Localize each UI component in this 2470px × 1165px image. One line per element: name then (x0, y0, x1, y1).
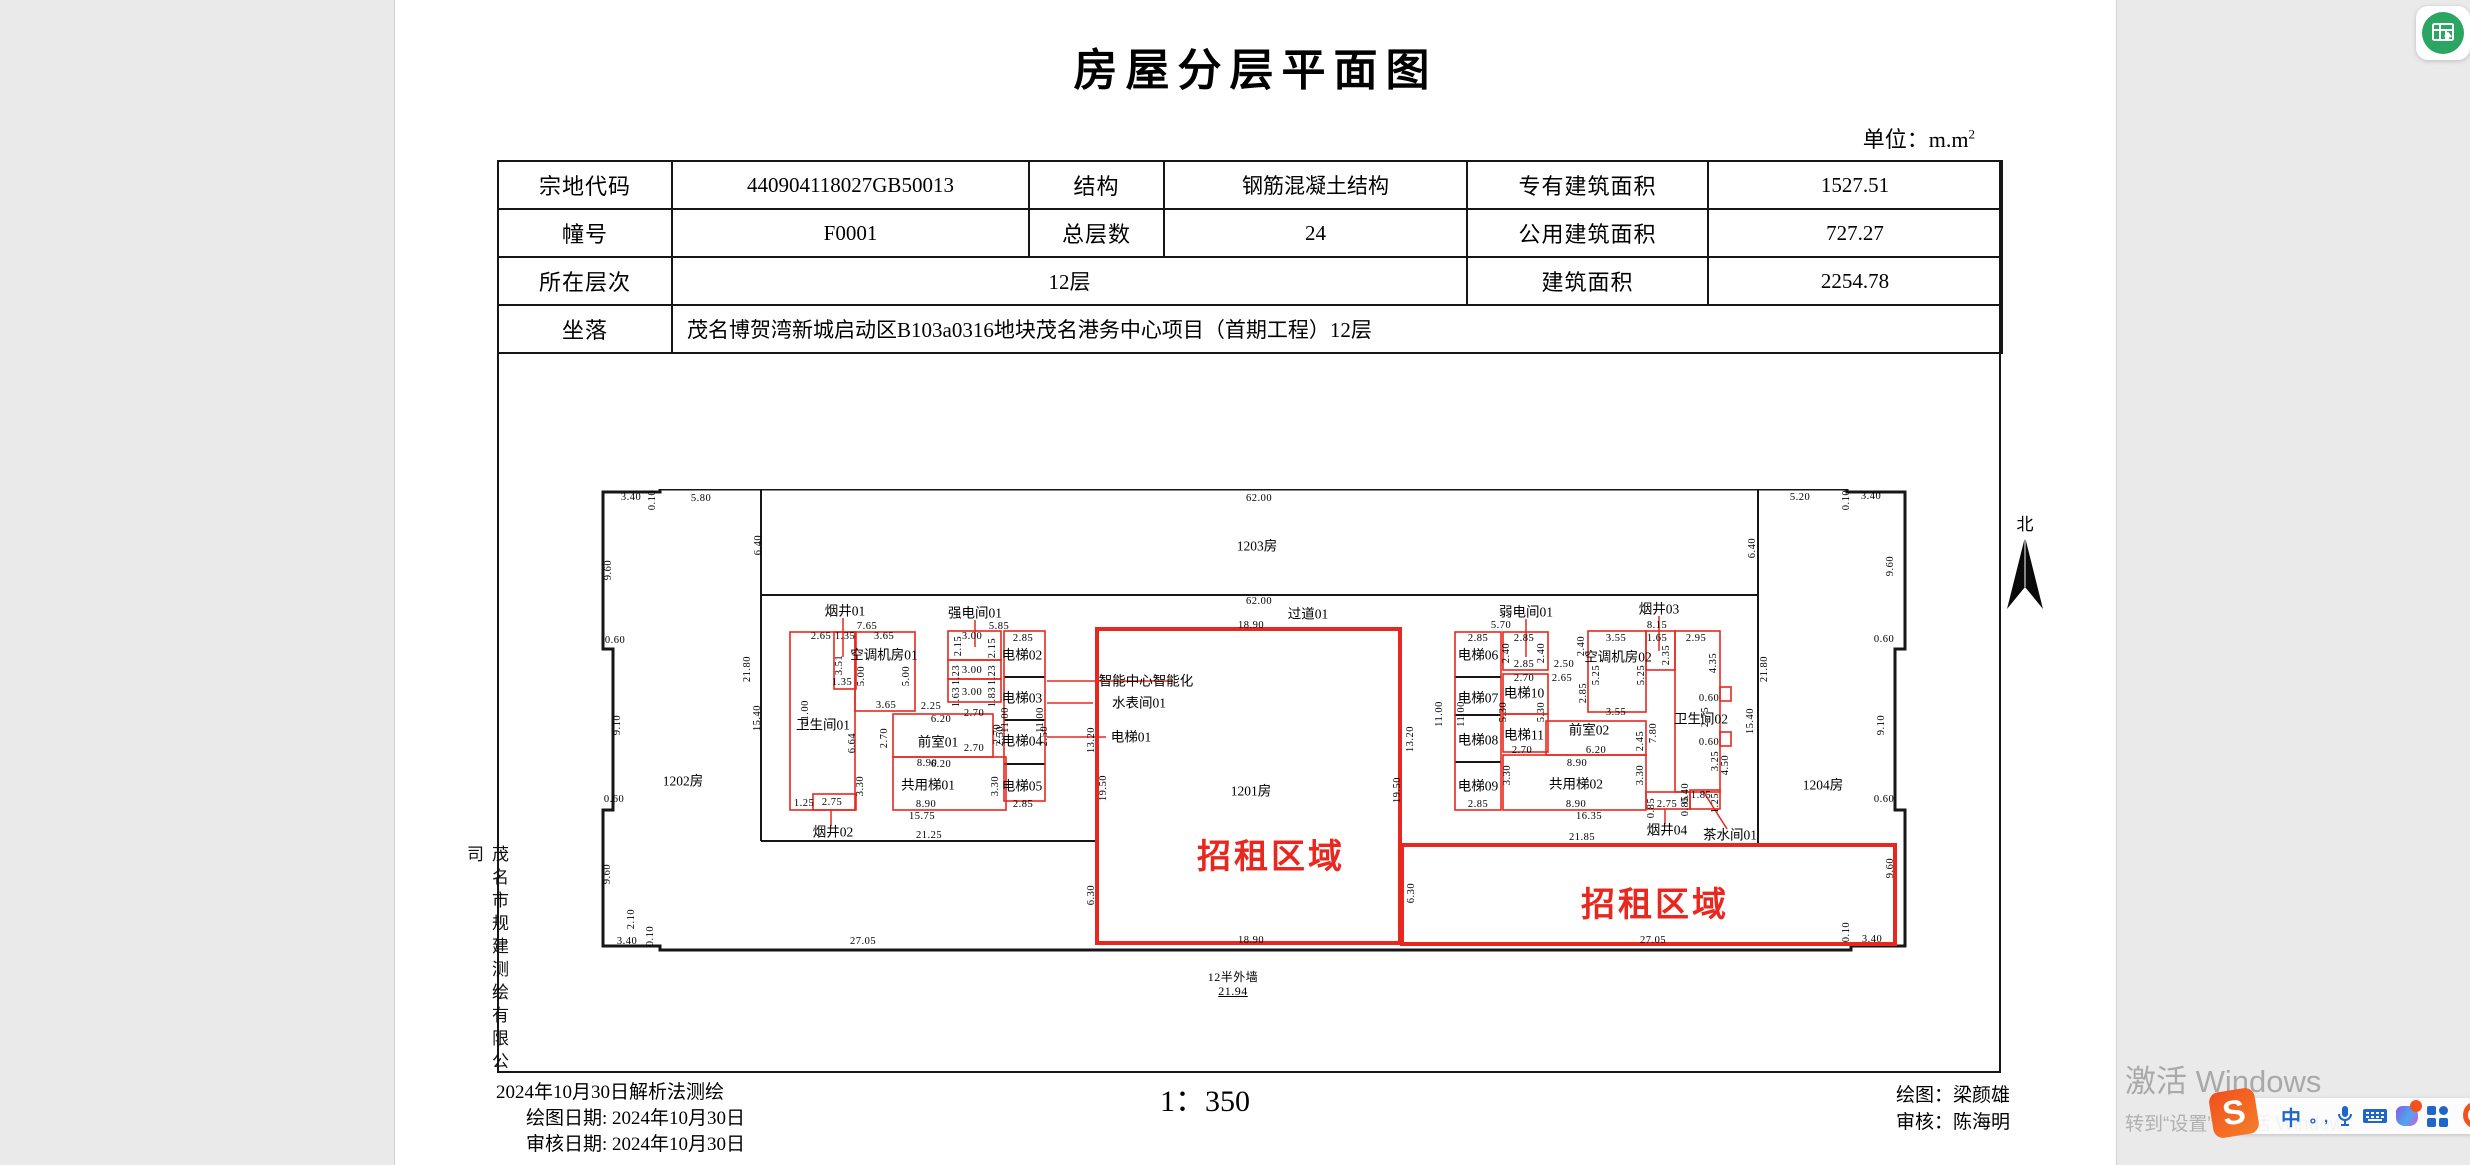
dimension-label: 2.85 (1514, 634, 1534, 645)
dimension-label: 3.65 (874, 632, 894, 643)
room-label: 电梯08 (1458, 733, 1499, 747)
info-cell: 公用建筑面积 (1467, 209, 1708, 257)
map-scale: 1：350 (1095, 1076, 1315, 1120)
unit-label: 单位：m.m2 (1575, 122, 1975, 154)
dimension-label: 1.23 (988, 665, 999, 685)
dimension-label: 0.60 (1699, 738, 1719, 749)
room-label: 茶水间01 (1703, 828, 1757, 842)
dimension-label: 0.10 (1842, 490, 1853, 510)
dimension-label: 5.80 (691, 494, 711, 505)
dimension-label: 9.60 (603, 864, 614, 884)
north-indicator: 北 (1995, 510, 2055, 630)
dimension-label: 3.40 (621, 493, 641, 504)
info-cell: 坐落 (498, 305, 672, 353)
dimension-label: 0.85 (1647, 798, 1658, 818)
dimension-label: 8.90 (1566, 800, 1586, 811)
dimension-label: 9.60 (1886, 858, 1897, 878)
dimension-label: 2.85 (1468, 800, 1488, 811)
dimension-label: 13.20 (1406, 726, 1417, 752)
dimension-label: 2.35 (1662, 645, 1673, 665)
dimension-label: 6.20 (931, 715, 951, 726)
dimension-label: 4.35 (1709, 653, 1720, 673)
dimension-label: 5.20 (1790, 493, 1810, 504)
survey-dates: 2024年10月30日解析法测绘 绘图日期: 2024年10月30日 审核日期:… (496, 1080, 745, 1158)
dimension-label: 19.50 (1099, 775, 1110, 801)
dimension-label: 3.65 (876, 701, 896, 712)
info-cell: 建筑面积 (1467, 257, 1708, 305)
credits: 绘图：梁颜雄 审核：陈海明 (1896, 1082, 2010, 1136)
room-label: 智能中心智能化 (1099, 674, 1194, 688)
room-label: 电梯01 (1111, 730, 1152, 744)
room-label: 前室02 (1569, 723, 1610, 737)
dimension-label: 0.60 (1874, 795, 1894, 806)
chinese-mode-icon[interactable]: 中 (2281, 1103, 2301, 1129)
dimension-label: 8.90 (916, 800, 936, 811)
dimension-label: 3.30 (1503, 765, 1514, 785)
sogou-logo-icon[interactable]: S (2208, 1087, 2261, 1140)
dimension-label: 15.40 (1746, 708, 1757, 734)
dimension-label: 1.65 (1647, 634, 1667, 645)
partial-app-icon[interactable] (2463, 1101, 2470, 1129)
dimension-label: 15.40 (753, 705, 764, 731)
room-label: 电梯04 (1002, 734, 1043, 748)
room-label: 烟井04 (1647, 823, 1688, 837)
dimension-label: 21.85 (1569, 833, 1595, 844)
floor-plan: 1202房1203房1204房1201房过道01烟井01强电间01空调机房01卫… (601, 489, 1911, 1049)
dimension-label: 8.15 (1647, 621, 1667, 632)
dimension-label: 2.25 (921, 702, 941, 713)
room-label: 弱电间01 (1499, 605, 1553, 619)
dimension-label: 5.30 (1499, 702, 1510, 722)
dimension-label: 2.15 (988, 638, 999, 658)
dimension-label: 0.10 (646, 926, 657, 946)
dimension-label: 16.35 (1576, 812, 1602, 823)
dimension-label: 12半外墙 (1208, 971, 1259, 983)
dimension-label: 2.45 (1636, 731, 1647, 751)
draw-date-line: 绘图日期: 2024年10月30日 (526, 1106, 745, 1132)
room-label: 电梯11 (1504, 728, 1544, 742)
room-label: 共用梯02 (1549, 777, 1603, 791)
dimension-label: 2.75 (1701, 707, 1712, 727)
survey-date-line: 2024年10月30日解析法测绘 (496, 1080, 745, 1106)
dimension-label: 1.35 (835, 632, 855, 643)
info-cell: 24 (1164, 209, 1467, 257)
dimension-label: 1.25 (1711, 793, 1722, 813)
room-label: 前室01 (918, 735, 959, 749)
dimension-label: 2.75 (822, 798, 842, 809)
dimension-label: 18.90 (1238, 936, 1264, 947)
dimension-label: 27.05 (850, 937, 876, 948)
dimension-label: 2.40 (1502, 643, 1513, 663)
dimension-label: 62.00 (1246, 597, 1272, 608)
dimension-label: 6.30 (1407, 883, 1418, 903)
north-arrow-icon (1997, 535, 2053, 613)
dimension-label: 0.10 (648, 490, 659, 510)
info-cell: F0001 (672, 209, 1029, 257)
dimension-label: 27.05 (1640, 936, 1666, 947)
dimension-label: 2.50 (1554, 660, 1574, 671)
dimension-label: 2.70 (1512, 746, 1532, 757)
dimension-label: 11.00 (1457, 701, 1468, 727)
dimension-label: 5.25 (1637, 665, 1648, 685)
reviewer-name: 审核：陈海明 (1896, 1109, 2010, 1136)
dimension-label: 2.65 (1552, 674, 1572, 685)
dimension-label: 18.90 (1238, 621, 1264, 632)
room-label: 水表间01 (1112, 696, 1166, 710)
dimension-label: 5.25 (1592, 665, 1603, 685)
microphone-icon[interactable] (2336, 1103, 2354, 1129)
dimension-label: 0.60 (1874, 635, 1894, 646)
dimension-label: 8.90 (1567, 759, 1587, 770)
info-cell: 专有建筑面积 (1467, 161, 1708, 209)
dimension-label: 0.60 (605, 636, 625, 647)
dimension-label: 6.40 (754, 535, 765, 555)
dimension-label: 0.60 (604, 795, 624, 806)
dimension-label: 5.70 (1491, 621, 1511, 632)
room-label: 电梯09 (1458, 779, 1499, 793)
info-cell: 440904118027GB50013 (672, 161, 1029, 209)
dimension-label: 21.80 (743, 656, 754, 682)
dimension-label: 13.20 (1087, 727, 1098, 753)
desktop: 房屋分层平面图 单位：m.m2 宗地代码440904118027GB50013结… (0, 0, 2470, 1165)
room-label: 电梯10 (1504, 686, 1545, 700)
skin-icon[interactable] (2396, 1106, 2418, 1126)
north-label: 北 (1995, 510, 2055, 535)
dimension-label: 5.00 (857, 666, 868, 686)
info-cell: 727.27 (1708, 209, 2002, 257)
info-cell: 幢号 (498, 209, 672, 257)
dimension-label: 2.15 (954, 636, 965, 656)
dimension-label: 2.85 (1468, 634, 1488, 645)
drawing-frame: 宗地代码440904118027GB50013结构钢筋混凝土结构专有建筑面积15… (497, 160, 2001, 1073)
dimension-label: 2.50 (1040, 726, 1051, 746)
dimension-label: 3.30 (1636, 765, 1647, 785)
dimension-label: 6.20 (1586, 746, 1606, 757)
dimension-label: 0.60 (1699, 694, 1719, 705)
dimension-label: 15.75 (909, 812, 935, 823)
drafter-name: 绘图：梁颜雄 (1896, 1082, 2010, 1109)
room-label: 电梯02 (1002, 648, 1043, 662)
dimension-label: 19.50 (1393, 777, 1404, 803)
dimension-label: 3.40 (1862, 935, 1882, 946)
dimension-label: 2.75 (1657, 800, 1677, 811)
toolbox-grid-icon[interactable] (2427, 1106, 2448, 1127)
room-label: 空调机房02 (1584, 650, 1652, 664)
page-title: 房屋分层平面图 (395, 34, 2116, 98)
dimension-label: 2.10 (627, 909, 638, 929)
dimension-label: 6.40 (1748, 538, 1759, 558)
document-sheet: 房屋分层平面图 单位：m.m2 宗地代码440904118027GB50013结… (394, 0, 2117, 1165)
dimension-label: 21.25 (916, 831, 942, 842)
room-label: 烟井01 (825, 604, 866, 618)
dimension-label: 6.30 (1087, 885, 1098, 905)
dimension-label: 2.85 (1579, 683, 1590, 703)
dimension-label: 2.95 (1686, 634, 1706, 645)
room-label: 电梯06 (1458, 648, 1499, 662)
dimension-label: 3.40 (617, 937, 637, 948)
dimension-label: 3.00 (962, 688, 982, 699)
dimension-label: 2.65 (811, 632, 831, 643)
dimension-label: 2.40 (1577, 636, 1588, 656)
dimension-label: 2.85 (1013, 800, 1033, 811)
dimension-label: 9.10 (1877, 715, 1888, 735)
dimension-label: 2.70 (880, 728, 891, 748)
dimension-label: 9.10 (613, 715, 624, 735)
dimension-label: 3.00 (962, 632, 982, 643)
dimension-label: 2.70 (964, 709, 984, 720)
rental-area-label: 招租区域 (1581, 888, 1729, 922)
room-label: 电梯03 (1002, 691, 1043, 705)
dimension-label: 21.94 (1218, 985, 1248, 997)
punctuation-icon[interactable]: 。, (2310, 1103, 2327, 1129)
dimension-label: 3.55 (1606, 708, 1626, 719)
room-label: 空调机房01 (850, 648, 918, 662)
info-cell: 结构 (1029, 161, 1164, 209)
dimension-label: 62.00 (1246, 494, 1272, 505)
dimension-label: 11.00 (801, 700, 812, 726)
dimension-label: 3.30 (991, 776, 1002, 796)
keyboard-icon[interactable] (2363, 1103, 2387, 1129)
dimension-label: 11.00 (1435, 701, 1446, 727)
review-date-line: 审核日期: 2024年10月30日 (526, 1132, 745, 1158)
dimension-label: 0.85 (1681, 796, 1692, 816)
dimension-label: 2.85 (1013, 634, 1033, 645)
room-label: 共用梯01 (901, 778, 955, 792)
dimension-label: 3.40 (1861, 492, 1881, 503)
dimension-label: 3.51 (835, 655, 846, 675)
dimension-label: 1.23 (952, 665, 963, 685)
export-table-button[interactable] (2416, 6, 2470, 60)
room-label: 过道01 (1288, 607, 1329, 621)
info-cell: 2254.78 (1708, 257, 2002, 305)
dimension-label: 9.60 (604, 560, 615, 580)
dimension-label: 1.63 (952, 687, 963, 707)
dimension-label: 5.00 (902, 666, 913, 686)
table-export-icon (2422, 12, 2464, 54)
dimension-label: 21.80 (1760, 656, 1771, 682)
room-label: 1202房 (663, 774, 704, 788)
dimension-label: 6.64 (848, 733, 859, 753)
dimension-label: 1.35 (832, 678, 852, 689)
dimension-label: 2.70 (1514, 674, 1534, 685)
room-label: 电梯05 (1002, 779, 1043, 793)
dimension-label: 0.10 (1842, 922, 1853, 942)
dimension-label: 8.90 (917, 759, 937, 770)
dimension-label: 7.80 (1649, 723, 1660, 743)
info-cell: 12层 (672, 257, 1467, 305)
info-cell: 茂名博贺湾新城启动区B103a0316地块茂名港务中心项目（首期工程）12层 (672, 305, 2002, 353)
info-cell: 钢筋混凝土结构 (1164, 161, 1467, 209)
info-cell: 宗地代码 (498, 161, 672, 209)
room-label: 烟井02 (813, 825, 854, 839)
dimension-label: 4.50 (1721, 755, 1732, 775)
info-cell: 所在层次 (498, 257, 672, 305)
dimension-label: 1.85 (1691, 791, 1711, 802)
dimension-label: 5.85 (989, 622, 1009, 633)
info-cell: 总层数 (1029, 209, 1164, 257)
info-cell: 1527.51 (1708, 161, 2002, 209)
room-label: 强电间01 (948, 606, 1002, 620)
dimension-label: 3.00 (962, 666, 982, 677)
ime-toolbar: S 中 。, (2237, 1098, 2470, 1134)
dimension-label: 2.40 (1537, 643, 1548, 663)
room-label: 烟井03 (1639, 602, 1680, 616)
dimension-label: 1.83 (988, 687, 999, 707)
company-name-vertical: 茂名市规建测绘有限公司 (461, 845, 511, 1095)
info-table: 宗地代码440904118027GB50013结构钢筋混凝土结构专有建筑面积15… (497, 160, 2003, 354)
dimension-label: 1.25 (794, 799, 814, 810)
room-label: 1203房 (1237, 539, 1278, 553)
room-label: 1201房 (1231, 784, 1272, 798)
dimension-label: 3.55 (1606, 634, 1626, 645)
dimension-label: 2.70 (993, 724, 1004, 744)
dimension-label: 2.85 (1514, 660, 1534, 671)
dimension-label: 5.30 (1537, 702, 1548, 722)
rental-area-label: 招租区域 (1197, 840, 1345, 874)
room-label: 1204房 (1803, 778, 1844, 792)
dimension-label: 9.60 (1886, 556, 1897, 576)
dimension-label: 2.70 (964, 744, 984, 755)
dimension-label: 3.30 (856, 776, 867, 796)
